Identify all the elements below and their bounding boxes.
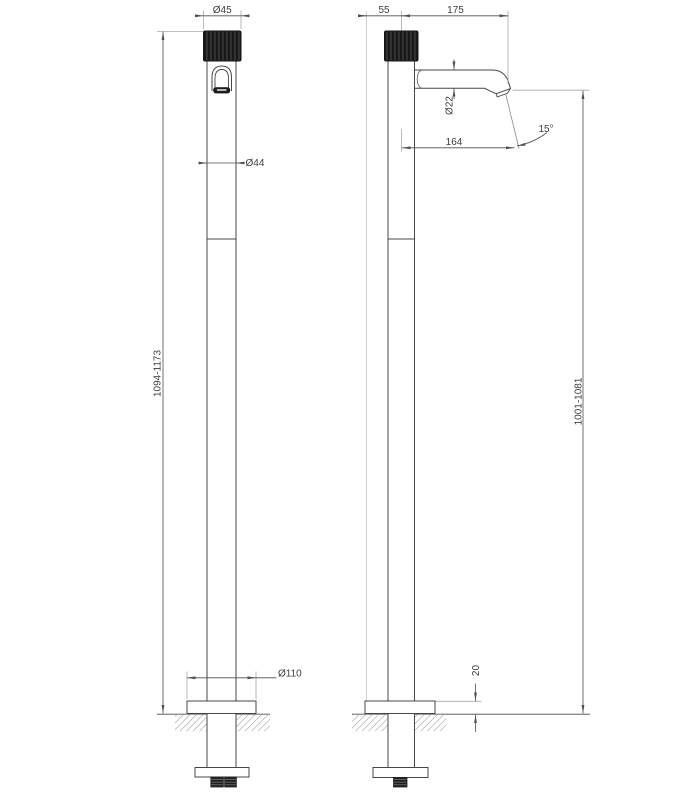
dim-handle-diameter: Ø45 <box>196 5 250 29</box>
knurled-handle-side <box>385 31 419 61</box>
base-plate-side <box>365 701 435 714</box>
dim-label-body-diameter: Ø44 <box>246 158 265 169</box>
fixing-flange-side <box>373 768 428 778</box>
floor-hatch-front-right <box>236 715 270 732</box>
faucet-body-column-front <box>207 61 236 701</box>
dim-spout-projection: 164 15° <box>402 95 554 152</box>
stream-angle-line <box>506 95 519 149</box>
fixing-stud-side <box>394 778 408 788</box>
front-view: Ø45 Ø44 Ø110 1094-1173 <box>153 5 303 787</box>
dim-label-handle-diameter: Ø45 <box>213 5 232 16</box>
side-view: 55 175 Ø22 164 15° 1001-1081 <box>352 5 590 787</box>
faucet-body-column-side <box>388 61 415 702</box>
dim-label-base-plate-height: 20 <box>471 665 482 677</box>
floor-hatch-side-left <box>352 715 388 732</box>
fixing-stud-front-right <box>225 777 237 787</box>
faucet-dimension-drawing: Ø45 Ø44 Ø110 1094-1173 <box>0 0 695 800</box>
dim-label-spout-reach: 175 <box>447 5 464 16</box>
floor-hatch-front-left <box>175 715 207 732</box>
under-floor-pipe-front <box>207 714 236 768</box>
technical-drawing-canvas: Ø45 Ø44 Ø110 1094-1173 <box>0 0 695 800</box>
dim-label-base-radius: 55 <box>378 5 390 16</box>
fixing-flange-front <box>195 768 249 778</box>
dim-overall-height-front: 1094-1173 <box>153 32 204 714</box>
dim-base-diameter: Ø110 <box>187 669 302 700</box>
spout-side <box>415 70 511 94</box>
dim-overall-height-side: 1001-1081 <box>513 90 590 713</box>
dim-label-outlet-angle: 15° <box>539 124 554 135</box>
dim-label-height-front: 1094-1173 <box>153 350 164 398</box>
dim-label-base-diameter: Ø110 <box>278 669 302 680</box>
floor-hatch-side-right <box>415 715 446 732</box>
dim-label-height-side: 1001-1081 <box>574 377 585 425</box>
dim-label-spout-diameter: Ø22 <box>445 96 456 115</box>
fixing-stud-front-left <box>211 777 224 787</box>
dim-label-spout-projection: 164 <box>446 137 463 148</box>
base-plate-front <box>187 701 256 714</box>
spout-aerator-slit <box>217 89 227 91</box>
knurled-handle-front <box>204 31 242 61</box>
under-floor-pipe-side <box>388 714 415 768</box>
